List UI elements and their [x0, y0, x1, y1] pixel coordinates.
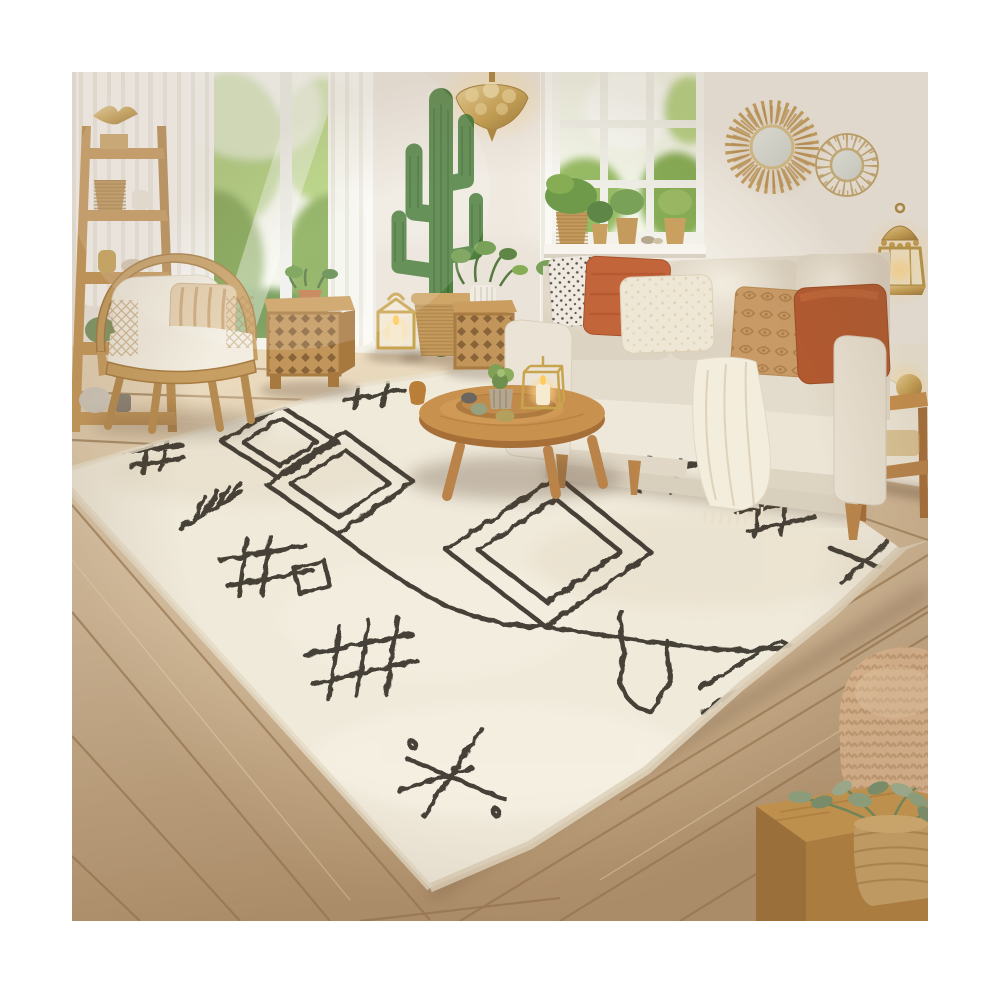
- vignette: [72, 72, 928, 921]
- living-room-photo: [0, 0, 1000, 1000]
